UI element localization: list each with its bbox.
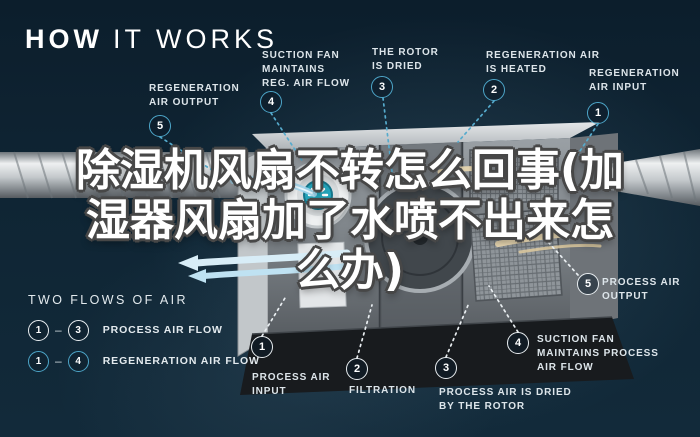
legend-circle-from: 1 [28, 351, 49, 372]
legend-dash: – [55, 354, 62, 368]
headline-line-1: 除湿机风扇不转怎么回事(加 [0, 146, 700, 196]
callout-regeneration-input: REGENERATION AIR INPUT [589, 67, 680, 95]
callout-suction-fan-reg: SUCTION FAN MAINTAINS REG. AIR FLOW [262, 49, 350, 90]
legend-circle-to: 3 [68, 320, 89, 341]
legend-row-regeneration: 1 – 4 REGENERATION AIR FLOW [28, 350, 260, 372]
headline-line-3: 么办) [0, 246, 700, 296]
callout-process-dried: PROCESS AIR IS DRIED BY THE ROTOR [439, 386, 572, 414]
legend-circle-to: 4 [68, 351, 89, 372]
legend-circle-from: 1 [28, 320, 49, 341]
badge-process-input-1: 1 [251, 336, 273, 358]
callout-suction-fan-process: SUCTION FAN MAINTAINS PROCESS AIR FLOW [537, 333, 659, 374]
headline-line-2: 湿器风扇加了水喷不出来怎 [0, 196, 700, 246]
badge-filtration-2: 2 [346, 358, 368, 380]
legend-row-process: 1 – 3 PROCESS AIR FLOW [28, 319, 260, 341]
badge-rotor-dried-3: 3 [371, 76, 393, 98]
legend-label-regeneration: REGENERATION AIR FLOW [103, 355, 260, 367]
badge-suction-process-4: 4 [507, 332, 529, 354]
title-word-light: IT WORKS [113, 24, 278, 54]
infographic-canvas: HOWIT WORKS REGENERATION AIR OUTPUT SUCT… [0, 0, 700, 437]
page-title: HOWIT WORKS [25, 24, 278, 55]
legend: TWO FLOWS OF AIR 1 – 3 PROCESS AIR FLOW … [28, 293, 260, 381]
badge-regen-heated-2: 2 [483, 79, 505, 101]
callout-rotor-dried: THE ROTOR IS DRIED [372, 46, 439, 74]
badge-process-dried-3: 3 [435, 357, 457, 379]
callout-filtration: FILTRATION [349, 384, 416, 398]
callout-process-input: PROCESS AIR INPUT [252, 371, 330, 399]
callout-regeneration-heated: REGENERATION AIR IS HEATED [486, 49, 600, 77]
headline-overlay: 除湿机风扇不转怎么回事(加 湿器风扇加了水喷不出来怎 么办) [0, 146, 700, 296]
legend-label-process: PROCESS AIR FLOW [103, 324, 223, 336]
legend-dash: – [55, 323, 62, 337]
badge-regen-input-1: 1 [587, 102, 609, 124]
badge-suction-reg-4: 4 [260, 91, 282, 113]
callout-regeneration-air-output: REGENERATION AIR OUTPUT [149, 82, 240, 110]
badge-regen-output-5: 5 [149, 115, 171, 137]
title-word-bold: HOW [25, 24, 103, 54]
